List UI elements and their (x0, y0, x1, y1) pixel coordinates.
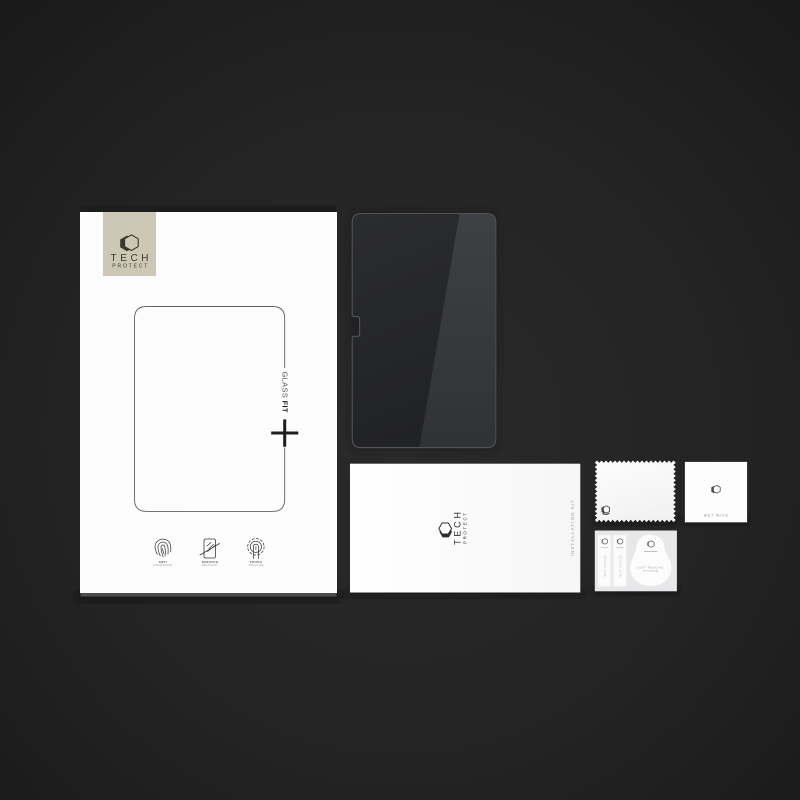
svg-text:GLASS FIT: GLASS FIT (281, 372, 290, 413)
svg-text:DUST STICKER: DUST STICKER (604, 555, 607, 577)
svg-text:WET WIPE: WET WIPE (704, 514, 729, 518)
svg-text:RESISTANT: RESISTANT (202, 564, 218, 567)
svg-text:PROTECT: PROTECT (462, 513, 467, 544)
svg-text:FINGERPRINT: FINGERPRINT (153, 564, 173, 567)
svg-text:PROTECT: PROTECT (112, 263, 147, 269)
svg-text:TECH: TECH (111, 253, 149, 264)
svg-text:STICKER: STICKER (643, 569, 658, 573)
svg-text:INSTALLATION KIT: INSTALLATION KIT (570, 499, 575, 557)
svg-text:DUST REMOVAL: DUST REMOVAL (637, 565, 664, 569)
svg-text:SENSITIVE: SENSITIVE (248, 564, 263, 567)
svg-text:DUST STICKER: DUST STICKER (620, 555, 623, 577)
svg-text:TECH: TECH (453, 512, 463, 545)
